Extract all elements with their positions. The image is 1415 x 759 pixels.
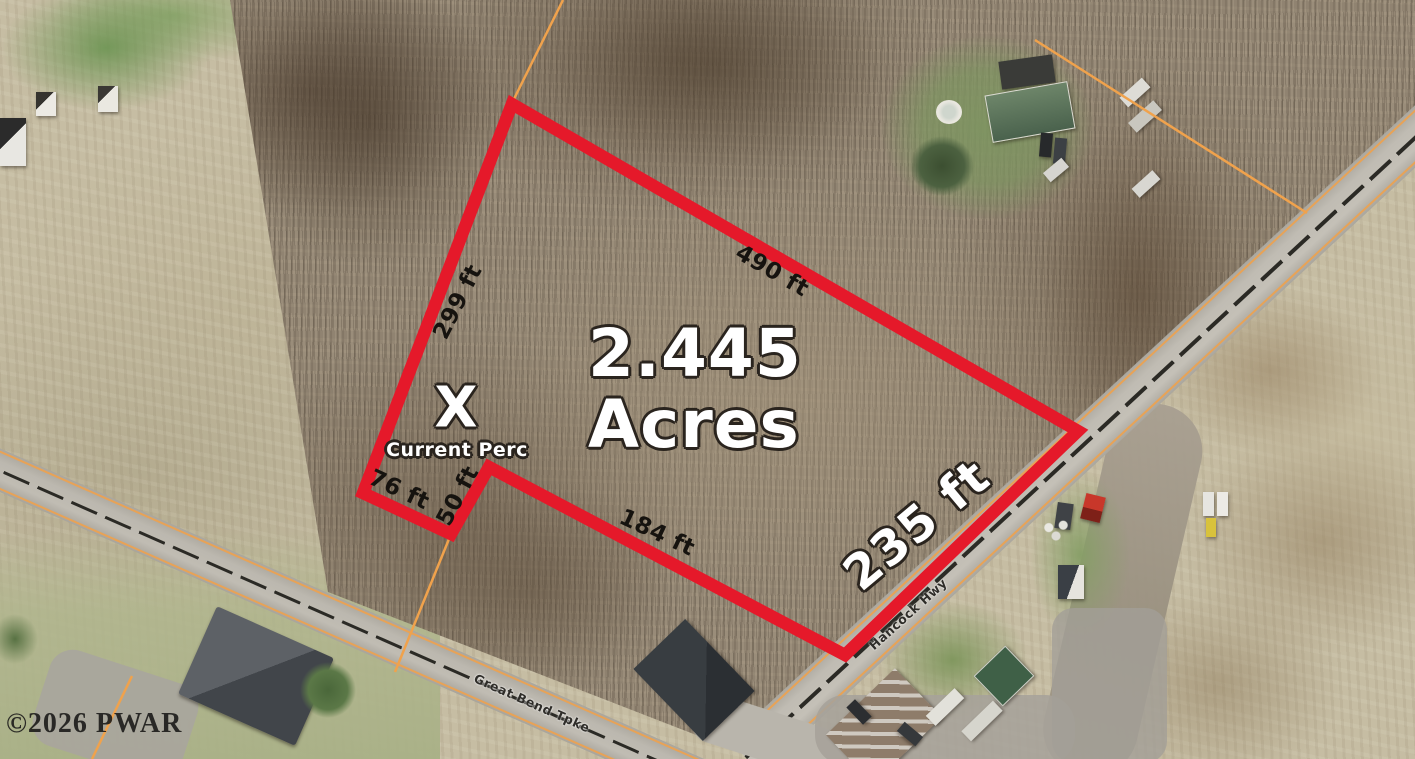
debris: [1038, 518, 1074, 542]
vehicle: [1039, 133, 1053, 158]
building: [0, 118, 26, 166]
building: [1058, 565, 1084, 599]
vehicle-yellow: [1206, 518, 1216, 537]
vehicle: [1203, 492, 1214, 516]
forest-shadow: [545, 0, 885, 170]
building: [36, 92, 56, 116]
pool: [936, 100, 962, 124]
building: [98, 86, 118, 112]
tree: [300, 662, 356, 718]
vehicle: [1217, 492, 1228, 516]
aerial-parcel-map: 2.445 Acres X Current Perc 490 ft 299 ft…: [0, 0, 1415, 759]
driveway: [1052, 608, 1167, 759]
forest-shadow: [235, 0, 505, 270]
tree: [910, 136, 974, 196]
